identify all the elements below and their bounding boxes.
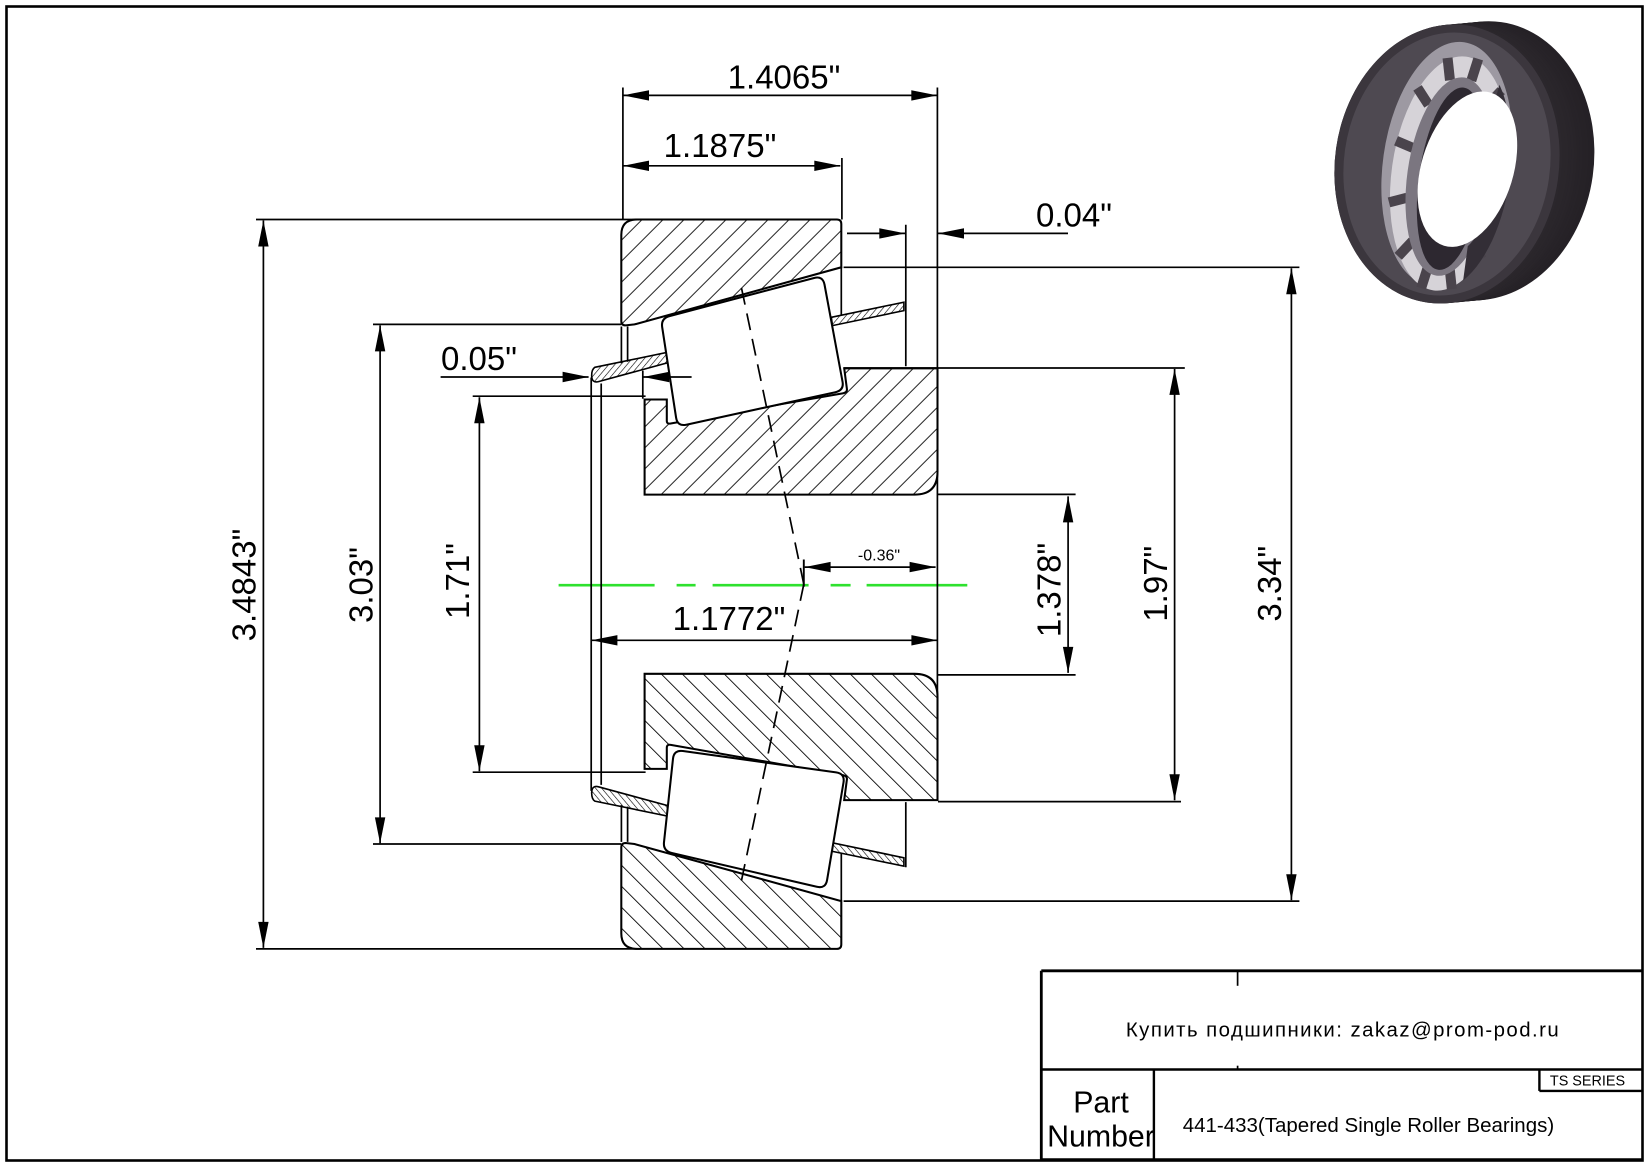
svg-text:1.378": 1.378" [1031,543,1068,637]
svg-text:1.1772": 1.1772" [673,600,786,637]
svg-text:1.4065": 1.4065" [728,58,841,95]
svg-text:1.1875": 1.1875" [664,127,777,164]
svg-text:441-433(Tapered Single Roller: 441-433(Tapered Single Roller Bearings) [1183,1114,1555,1137]
svg-text:1.71": 1.71" [439,543,476,619]
svg-text:3.4843": 3.4843" [226,529,263,642]
svg-text:-0.36": -0.36" [858,548,900,565]
svg-text:0.04": 0.04" [1036,197,1112,234]
svg-text:3.34": 3.34" [1251,546,1288,622]
svg-text:Number: Number [1047,1120,1155,1153]
svg-text:3.03": 3.03" [342,547,379,623]
svg-text:0.05": 0.05" [441,340,517,377]
svg-text:Купить подшипники: zakaz@prom-: Купить подшипники: zakaz@prom-pod.ru [1126,1020,1560,1042]
svg-text:Part: Part [1073,1087,1129,1120]
svg-text:1.97": 1.97" [1137,546,1174,622]
svg-text:TS SERIES: TS SERIES [1550,1073,1625,1089]
